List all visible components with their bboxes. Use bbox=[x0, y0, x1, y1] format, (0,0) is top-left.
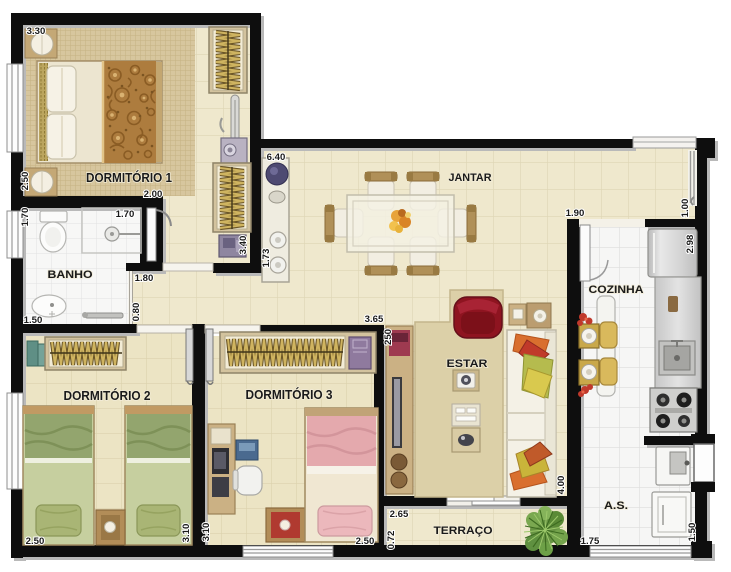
svg-text:BANHO: BANHO bbox=[48, 269, 93, 281]
svg-text:3.10: 3.10 bbox=[201, 523, 212, 542]
svg-text:2.50: 2.50 bbox=[20, 172, 31, 191]
svg-text:2.98: 2.98 bbox=[685, 234, 696, 253]
svg-text:1.73: 1.73 bbox=[261, 249, 272, 268]
svg-text:1.70: 1.70 bbox=[116, 209, 135, 220]
svg-text:1.80: 1.80 bbox=[135, 273, 154, 284]
svg-text:3.30: 3.30 bbox=[27, 26, 46, 37]
svg-text:A.S.: A.S. bbox=[604, 500, 628, 512]
svg-text:3.10: 3.10 bbox=[181, 524, 192, 543]
svg-text:1.00: 1.00 bbox=[680, 199, 691, 218]
svg-text:ESTAR: ESTAR bbox=[447, 358, 488, 370]
svg-text:TERRAÇO: TERRAÇO bbox=[434, 525, 493, 537]
svg-text:1.50: 1.50 bbox=[687, 523, 698, 542]
svg-text:1.90: 1.90 bbox=[566, 208, 585, 219]
svg-text:DORMITÓRIO 2: DORMITÓRIO 2 bbox=[64, 388, 151, 403]
svg-text:0.80: 0.80 bbox=[131, 303, 142, 322]
svg-text:250: 250 bbox=[383, 329, 394, 345]
svg-text:2.50: 2.50 bbox=[26, 536, 45, 547]
svg-text:2.65: 2.65 bbox=[390, 509, 409, 520]
svg-text:1.50: 1.50 bbox=[24, 315, 43, 326]
svg-text:1.75: 1.75 bbox=[581, 536, 600, 547]
svg-text:COZINHA: COZINHA bbox=[589, 284, 644, 296]
svg-text:1.70: 1.70 bbox=[20, 208, 31, 227]
svg-text:3.40: 3.40 bbox=[238, 236, 249, 255]
svg-text:DORMITÓRIO 1: DORMITÓRIO 1 bbox=[86, 170, 172, 185]
svg-text:DORMITÓRIO 3: DORMITÓRIO 3 bbox=[246, 387, 333, 402]
svg-text:2.00: 2.00 bbox=[144, 189, 163, 200]
svg-text:4.00: 4.00 bbox=[556, 476, 567, 495]
svg-text:6.40: 6.40 bbox=[267, 152, 286, 163]
svg-text:3.65: 3.65 bbox=[365, 314, 384, 325]
svg-text:JANTAR: JANTAR bbox=[449, 172, 492, 184]
svg-text:0.72: 0.72 bbox=[386, 531, 397, 550]
svg-text:2.50: 2.50 bbox=[356, 536, 375, 547]
